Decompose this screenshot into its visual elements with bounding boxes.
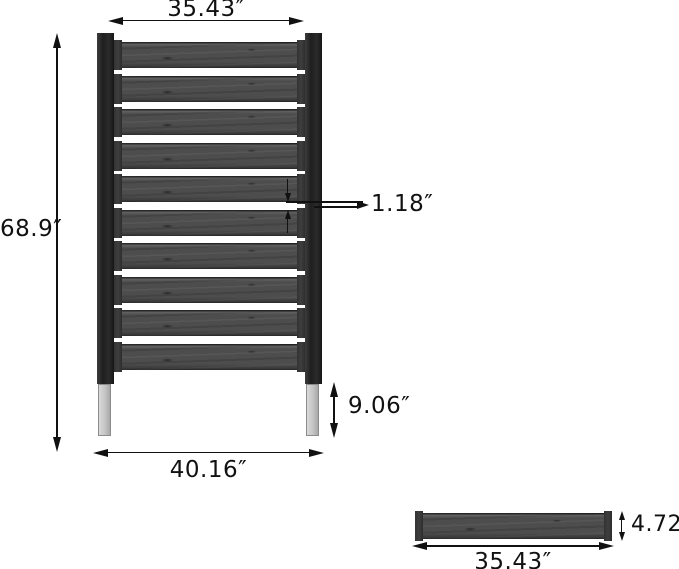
arrowhead-left-icon — [93, 449, 108, 457]
arrowhead-right-icon — [357, 201, 369, 209]
right-leg — [306, 384, 319, 436]
dim-slat-length: 35.43″ — [412, 539, 614, 554]
leader-line — [314, 206, 360, 208]
dim-base-width: 40.16″ — [93, 445, 324, 460]
dim-overall-height — [48, 33, 66, 452]
arrowhead-right-icon — [309, 449, 324, 457]
fence-slat — [114, 176, 305, 202]
arrowhead-up-icon — [619, 511, 625, 520]
left-leg — [98, 384, 111, 436]
fence-slat — [114, 42, 305, 68]
dimension-line — [105, 452, 312, 454]
gap-arrow-shaft — [287, 179, 289, 194]
fence-slat — [114, 143, 305, 169]
arrowhead-up-icon — [53, 33, 61, 48]
fence-slat — [114, 277, 305, 303]
dim-top-width: 35.43″ — [108, 13, 304, 28]
arrowhead-down-icon — [53, 437, 61, 452]
arrowhead-up-icon — [330, 382, 338, 397]
dim-slat-length-label: 35.43″ — [412, 550, 614, 569]
fence-slat — [114, 243, 305, 269]
dim-slat-gap-label: 1.18″ — [371, 192, 433, 217]
arrowhead-right-icon — [599, 542, 614, 550]
fence-slat — [114, 310, 305, 336]
dim-slat-thickness — [614, 511, 629, 541]
arrowhead-down-icon — [619, 532, 625, 541]
left-post — [97, 33, 114, 384]
fence-slats — [114, 42, 305, 371]
single-slat — [415, 513, 612, 539]
gap-arrow-shaft — [287, 218, 289, 233]
fence-slat — [114, 210, 305, 236]
dimension-line — [423, 545, 603, 547]
arrowhead-left-icon — [412, 542, 427, 550]
dimension-line — [56, 45, 58, 440]
right-post — [305, 33, 322, 384]
arrowhead-down-icon — [330, 423, 338, 438]
leader-line — [286, 201, 363, 203]
dim-leg-height — [326, 382, 342, 438]
fence-slat — [114, 76, 305, 102]
dim-leg-height-label: 9.06″ — [348, 394, 410, 419]
fence-slat — [114, 109, 305, 135]
dim-base-width-label: 40.16″ — [93, 458, 324, 483]
dimension-diagram: 35.43″ 68.9″ 1.18″ 9.06″ 40.16″ — [0, 0, 679, 569]
dim-slat-thickness-label: 4.72″ — [631, 513, 679, 537]
dim-overall-height-label: 68.9″ — [0, 217, 53, 242]
fence-slat — [114, 344, 305, 370]
dim-top-width-label: 35.43″ — [108, 0, 304, 22]
